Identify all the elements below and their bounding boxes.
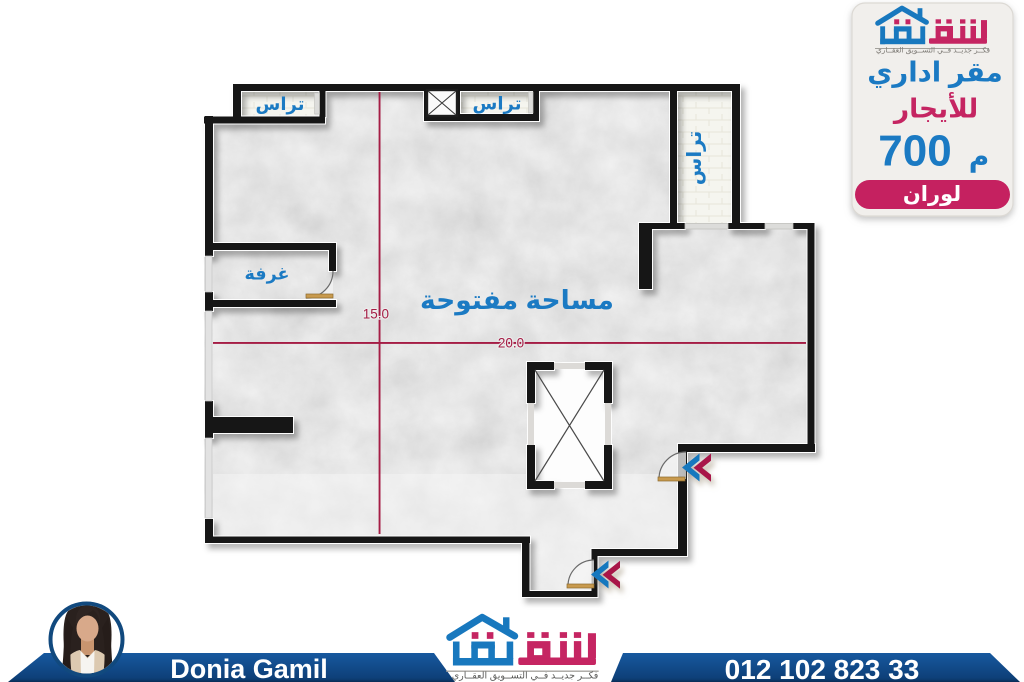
svg-text:فكــر جديــد فــي التســويق ال: فكــر جديــد فــي التســويق العقــاري [876,46,990,55]
svg-text:مساحة مفتوحة: مساحة مفتوحة [420,285,614,316]
svg-text:تراس: تراس [256,94,305,115]
svg-text:غرفة: غرفة [245,264,290,285]
svg-text:لوران: لوران [903,183,961,206]
svg-text:تراس: تراس [684,131,706,185]
svg-text:Donia Gamil: Donia Gamil [170,654,328,682]
svg-text:700: 700 [878,127,951,176]
svg-text:فكــر جديــد فــي التســويق ال: فكــر جديــد فــي التســويق العقــاري [452,671,599,682]
svg-text:تراس: تراس [473,94,522,115]
svg-text:للأيجار: للأيجار [892,92,978,124]
svg-text:مقر اداري: مقر اداري [867,57,1003,89]
svg-text:20.0: 20.0 [498,336,524,351]
svg-text:012 102 823 33: 012 102 823 33 [725,654,920,682]
svg-text:15.0: 15.0 [363,307,389,322]
svg-text:م: م [969,141,990,173]
